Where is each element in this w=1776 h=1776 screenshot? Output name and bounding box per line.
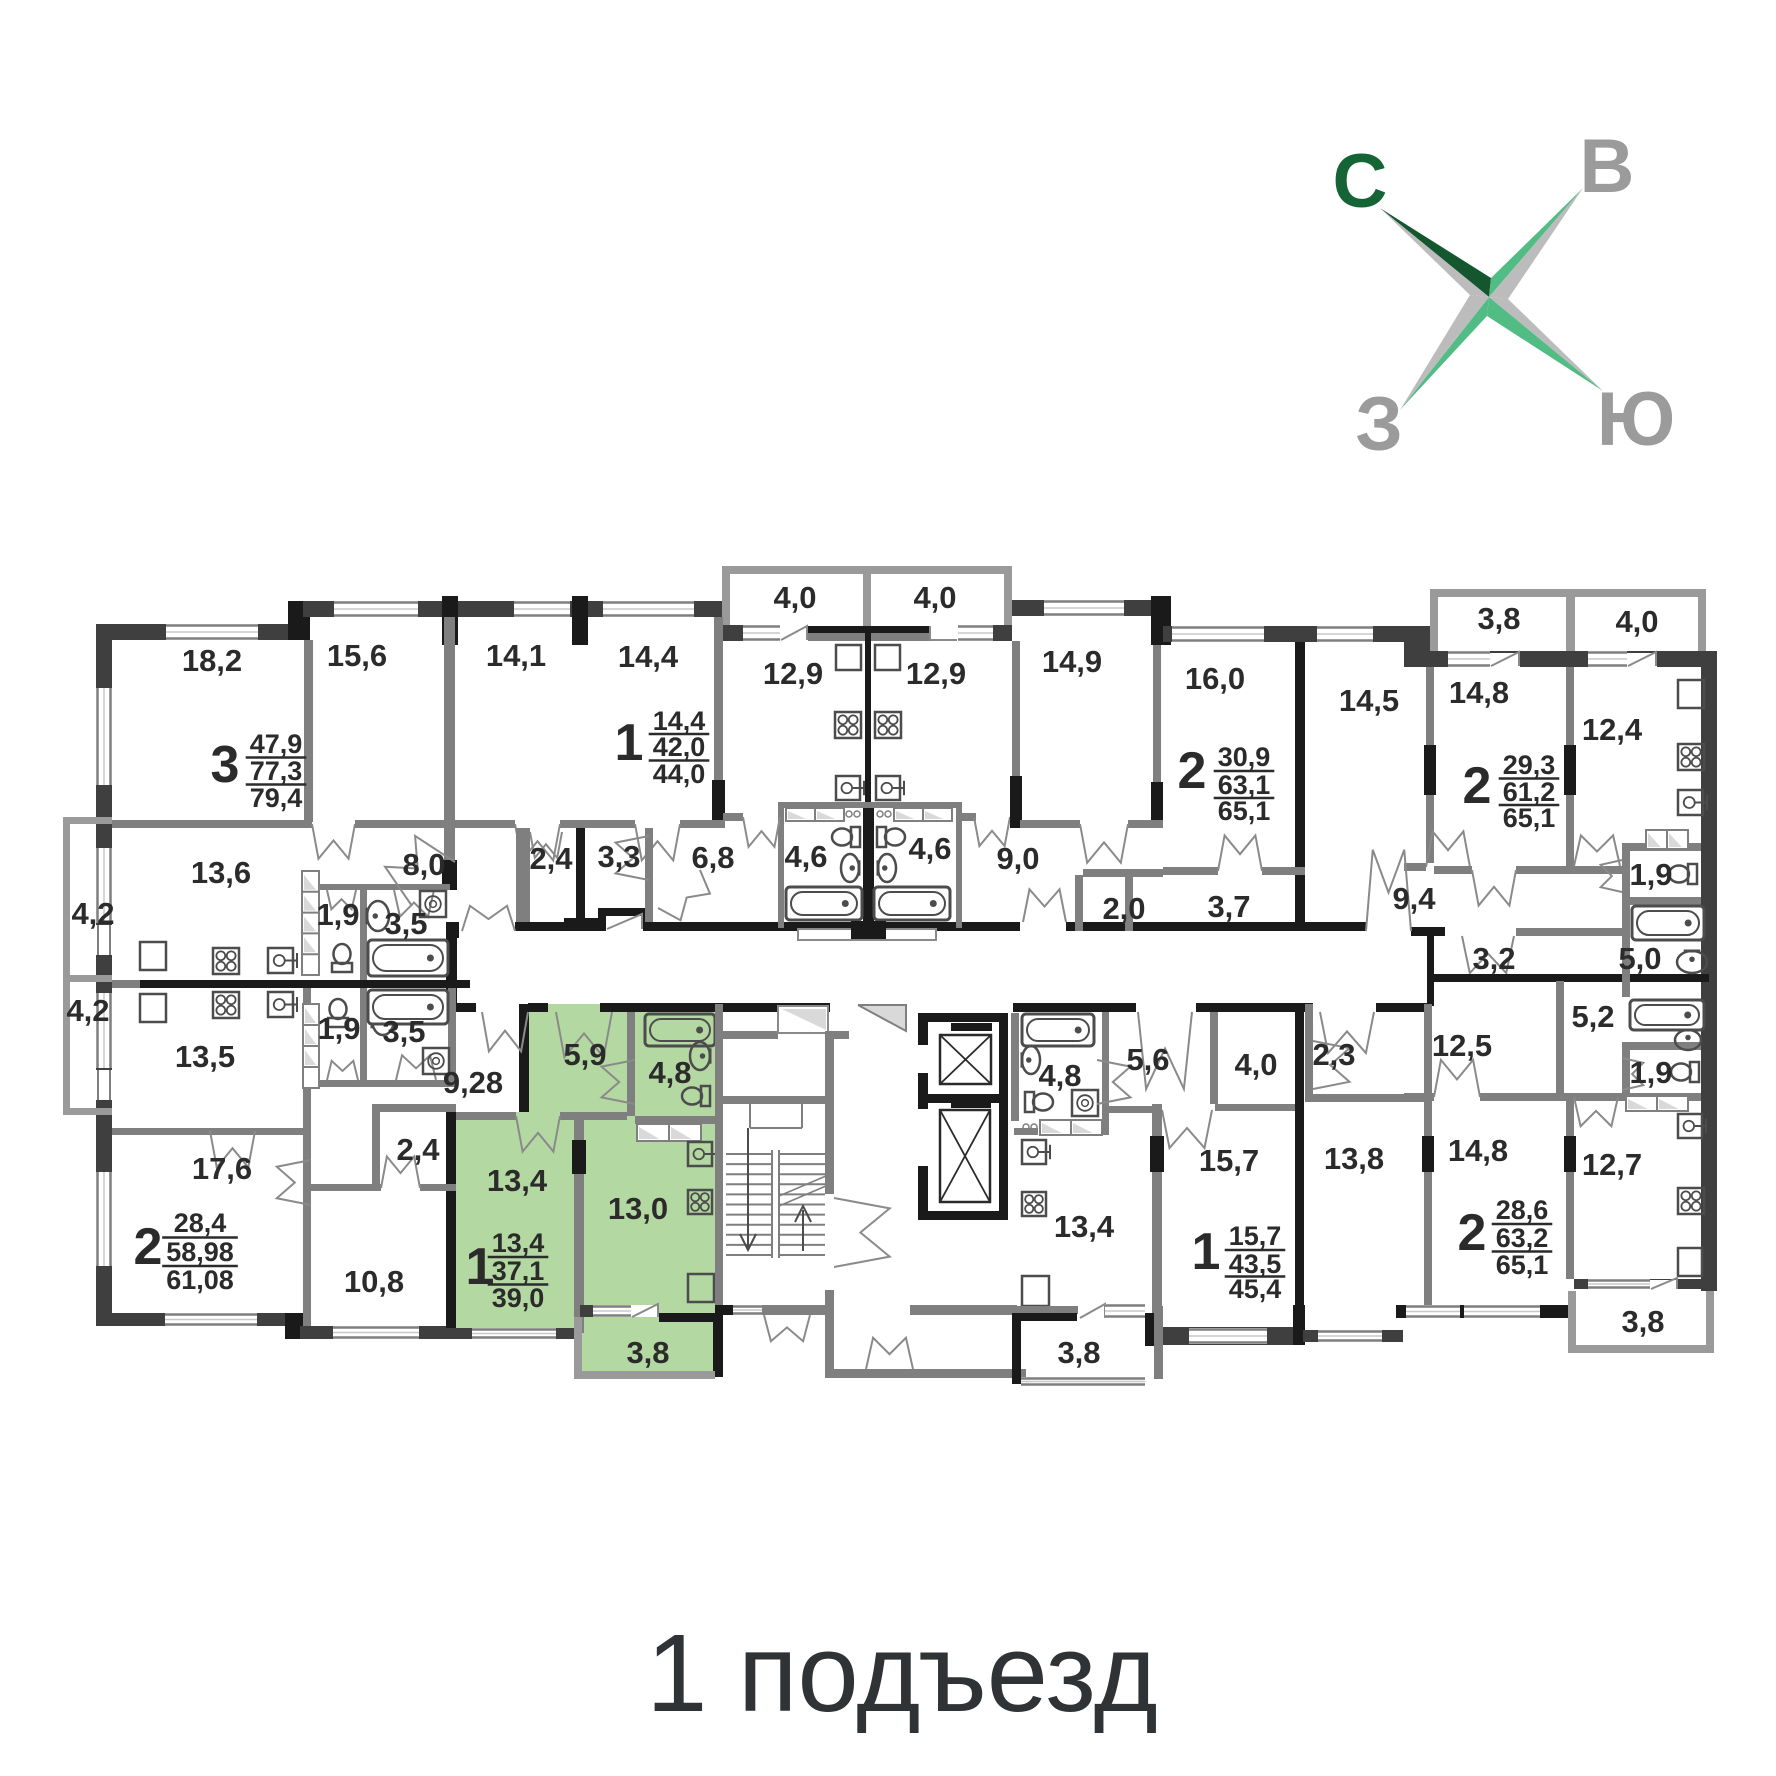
svg-text:9,28: 9,28 <box>443 1065 503 1100</box>
svg-text:29,3: 29,3 <box>1503 750 1556 780</box>
svg-text:1,9: 1,9 <box>317 1011 360 1046</box>
svg-text:65,1: 65,1 <box>1496 1250 1549 1280</box>
svg-text:4,0: 4,0 <box>913 580 956 615</box>
svg-text:14,8: 14,8 <box>1449 675 1509 710</box>
svg-text:1,9: 1,9 <box>316 897 359 932</box>
svg-text:37,1: 37,1 <box>492 1256 545 1286</box>
svg-text:4,2: 4,2 <box>71 896 114 931</box>
svg-text:5,6: 5,6 <box>1126 1042 1169 1077</box>
svg-text:1,9: 1,9 <box>1629 1055 1672 1090</box>
svg-text:9,0: 9,0 <box>996 841 1039 876</box>
svg-text:13,4: 13,4 <box>487 1163 548 1198</box>
svg-text:14,4: 14,4 <box>618 639 679 674</box>
svg-text:13,0: 13,0 <box>608 1191 668 1226</box>
svg-text:1: 1 <box>1192 1223 1221 1281</box>
svg-text:1: 1 <box>615 714 644 772</box>
svg-text:47,9: 47,9 <box>250 729 303 759</box>
svg-text:2: 2 <box>1463 757 1492 815</box>
svg-text:14,5: 14,5 <box>1339 683 1399 718</box>
svg-text:4,8: 4,8 <box>1038 1058 1081 1093</box>
svg-text:9,4: 9,4 <box>1392 881 1436 916</box>
svg-text:10,8: 10,8 <box>344 1264 404 1299</box>
svg-text:2: 2 <box>134 1218 163 1276</box>
svg-text:4,2: 4,2 <box>66 993 109 1028</box>
svg-text:3,8: 3,8 <box>626 1335 669 1370</box>
svg-text:13,4: 13,4 <box>1054 1209 1115 1244</box>
svg-text:2,3: 2,3 <box>1312 1037 1355 1072</box>
svg-text:4,0: 4,0 <box>1234 1047 1277 1082</box>
svg-text:3,7: 3,7 <box>1207 889 1250 924</box>
svg-text:14,8: 14,8 <box>1448 1133 1508 1168</box>
svg-text:З: З <box>1355 382 1403 467</box>
svg-text:2: 2 <box>1178 742 1207 800</box>
svg-text:79,4: 79,4 <box>250 783 303 813</box>
svg-text:5,2: 5,2 <box>1571 999 1614 1034</box>
svg-text:61,08: 61,08 <box>166 1265 234 1295</box>
svg-text:42,0: 42,0 <box>653 732 706 762</box>
svg-text:С: С <box>1333 139 1388 224</box>
svg-text:13,5: 13,5 <box>175 1039 235 1074</box>
svg-text:В: В <box>1580 124 1635 209</box>
svg-text:6,8: 6,8 <box>691 840 734 875</box>
svg-text:13,4: 13,4 <box>492 1228 545 1258</box>
svg-text:15,6: 15,6 <box>327 638 387 673</box>
svg-text:Ю: Ю <box>1597 377 1675 462</box>
svg-text:44,0: 44,0 <box>653 759 706 789</box>
svg-text:2: 2 <box>1458 1204 1487 1262</box>
svg-text:5,0: 5,0 <box>1618 941 1661 976</box>
svg-text:3,5: 3,5 <box>382 1014 425 1049</box>
svg-text:3,2: 3,2 <box>1472 941 1515 976</box>
svg-text:2,0: 2,0 <box>1102 891 1145 926</box>
svg-text:4,0: 4,0 <box>1615 604 1658 639</box>
svg-text:77,3: 77,3 <box>250 756 303 786</box>
svg-text:2,4: 2,4 <box>396 1132 440 1167</box>
svg-text:4,0: 4,0 <box>773 580 816 615</box>
svg-text:12,9: 12,9 <box>906 656 966 691</box>
svg-text:3,8: 3,8 <box>1057 1335 1100 1370</box>
svg-text:13,6: 13,6 <box>191 855 251 890</box>
svg-text:30,9: 30,9 <box>1218 742 1271 772</box>
svg-text:58,98: 58,98 <box>166 1237 234 1267</box>
svg-text:12,9: 12,9 <box>763 656 823 691</box>
svg-text:13,8: 13,8 <box>1324 1141 1384 1176</box>
svg-text:15,7: 15,7 <box>1229 1221 1282 1251</box>
svg-text:12,5: 12,5 <box>1432 1028 1492 1063</box>
svg-text:16,0: 16,0 <box>1185 661 1245 696</box>
svg-text:63,2: 63,2 <box>1496 1223 1549 1253</box>
svg-text:2,4: 2,4 <box>529 841 573 876</box>
svg-text:4,6: 4,6 <box>784 839 827 874</box>
svg-text:17,6: 17,6 <box>192 1151 252 1186</box>
svg-text:39,0: 39,0 <box>492 1283 545 1313</box>
svg-text:4,6: 4,6 <box>908 831 951 866</box>
svg-text:3,8: 3,8 <box>1621 1304 1664 1339</box>
svg-text:3: 3 <box>211 736 240 794</box>
svg-text:8,0: 8,0 <box>402 847 445 882</box>
svg-text:3,5: 3,5 <box>384 906 427 941</box>
svg-text:5,9: 5,9 <box>563 1037 606 1072</box>
svg-text:12,4: 12,4 <box>1582 712 1643 747</box>
svg-text:3,8: 3,8 <box>1477 601 1520 636</box>
svg-text:3,3: 3,3 <box>597 839 640 874</box>
svg-text:1,9: 1,9 <box>1629 857 1672 892</box>
svg-text:28,4: 28,4 <box>174 1208 227 1238</box>
svg-text:65,1: 65,1 <box>1218 796 1271 826</box>
svg-text:15,7: 15,7 <box>1199 1143 1259 1178</box>
svg-text:12,7: 12,7 <box>1582 1147 1642 1182</box>
svg-text:18,2: 18,2 <box>182 643 242 678</box>
svg-text:45,4: 45,4 <box>1229 1274 1282 1304</box>
svg-text:1 подъезд: 1 подъезд <box>646 1612 1158 1735</box>
svg-text:1: 1 <box>466 1238 495 1296</box>
svg-text:14,9: 14,9 <box>1042 644 1102 679</box>
svg-text:28,6: 28,6 <box>1496 1195 1549 1225</box>
svg-text:65,1: 65,1 <box>1503 803 1556 833</box>
svg-text:14,1: 14,1 <box>486 638 546 673</box>
svg-text:4,8: 4,8 <box>648 1055 691 1090</box>
